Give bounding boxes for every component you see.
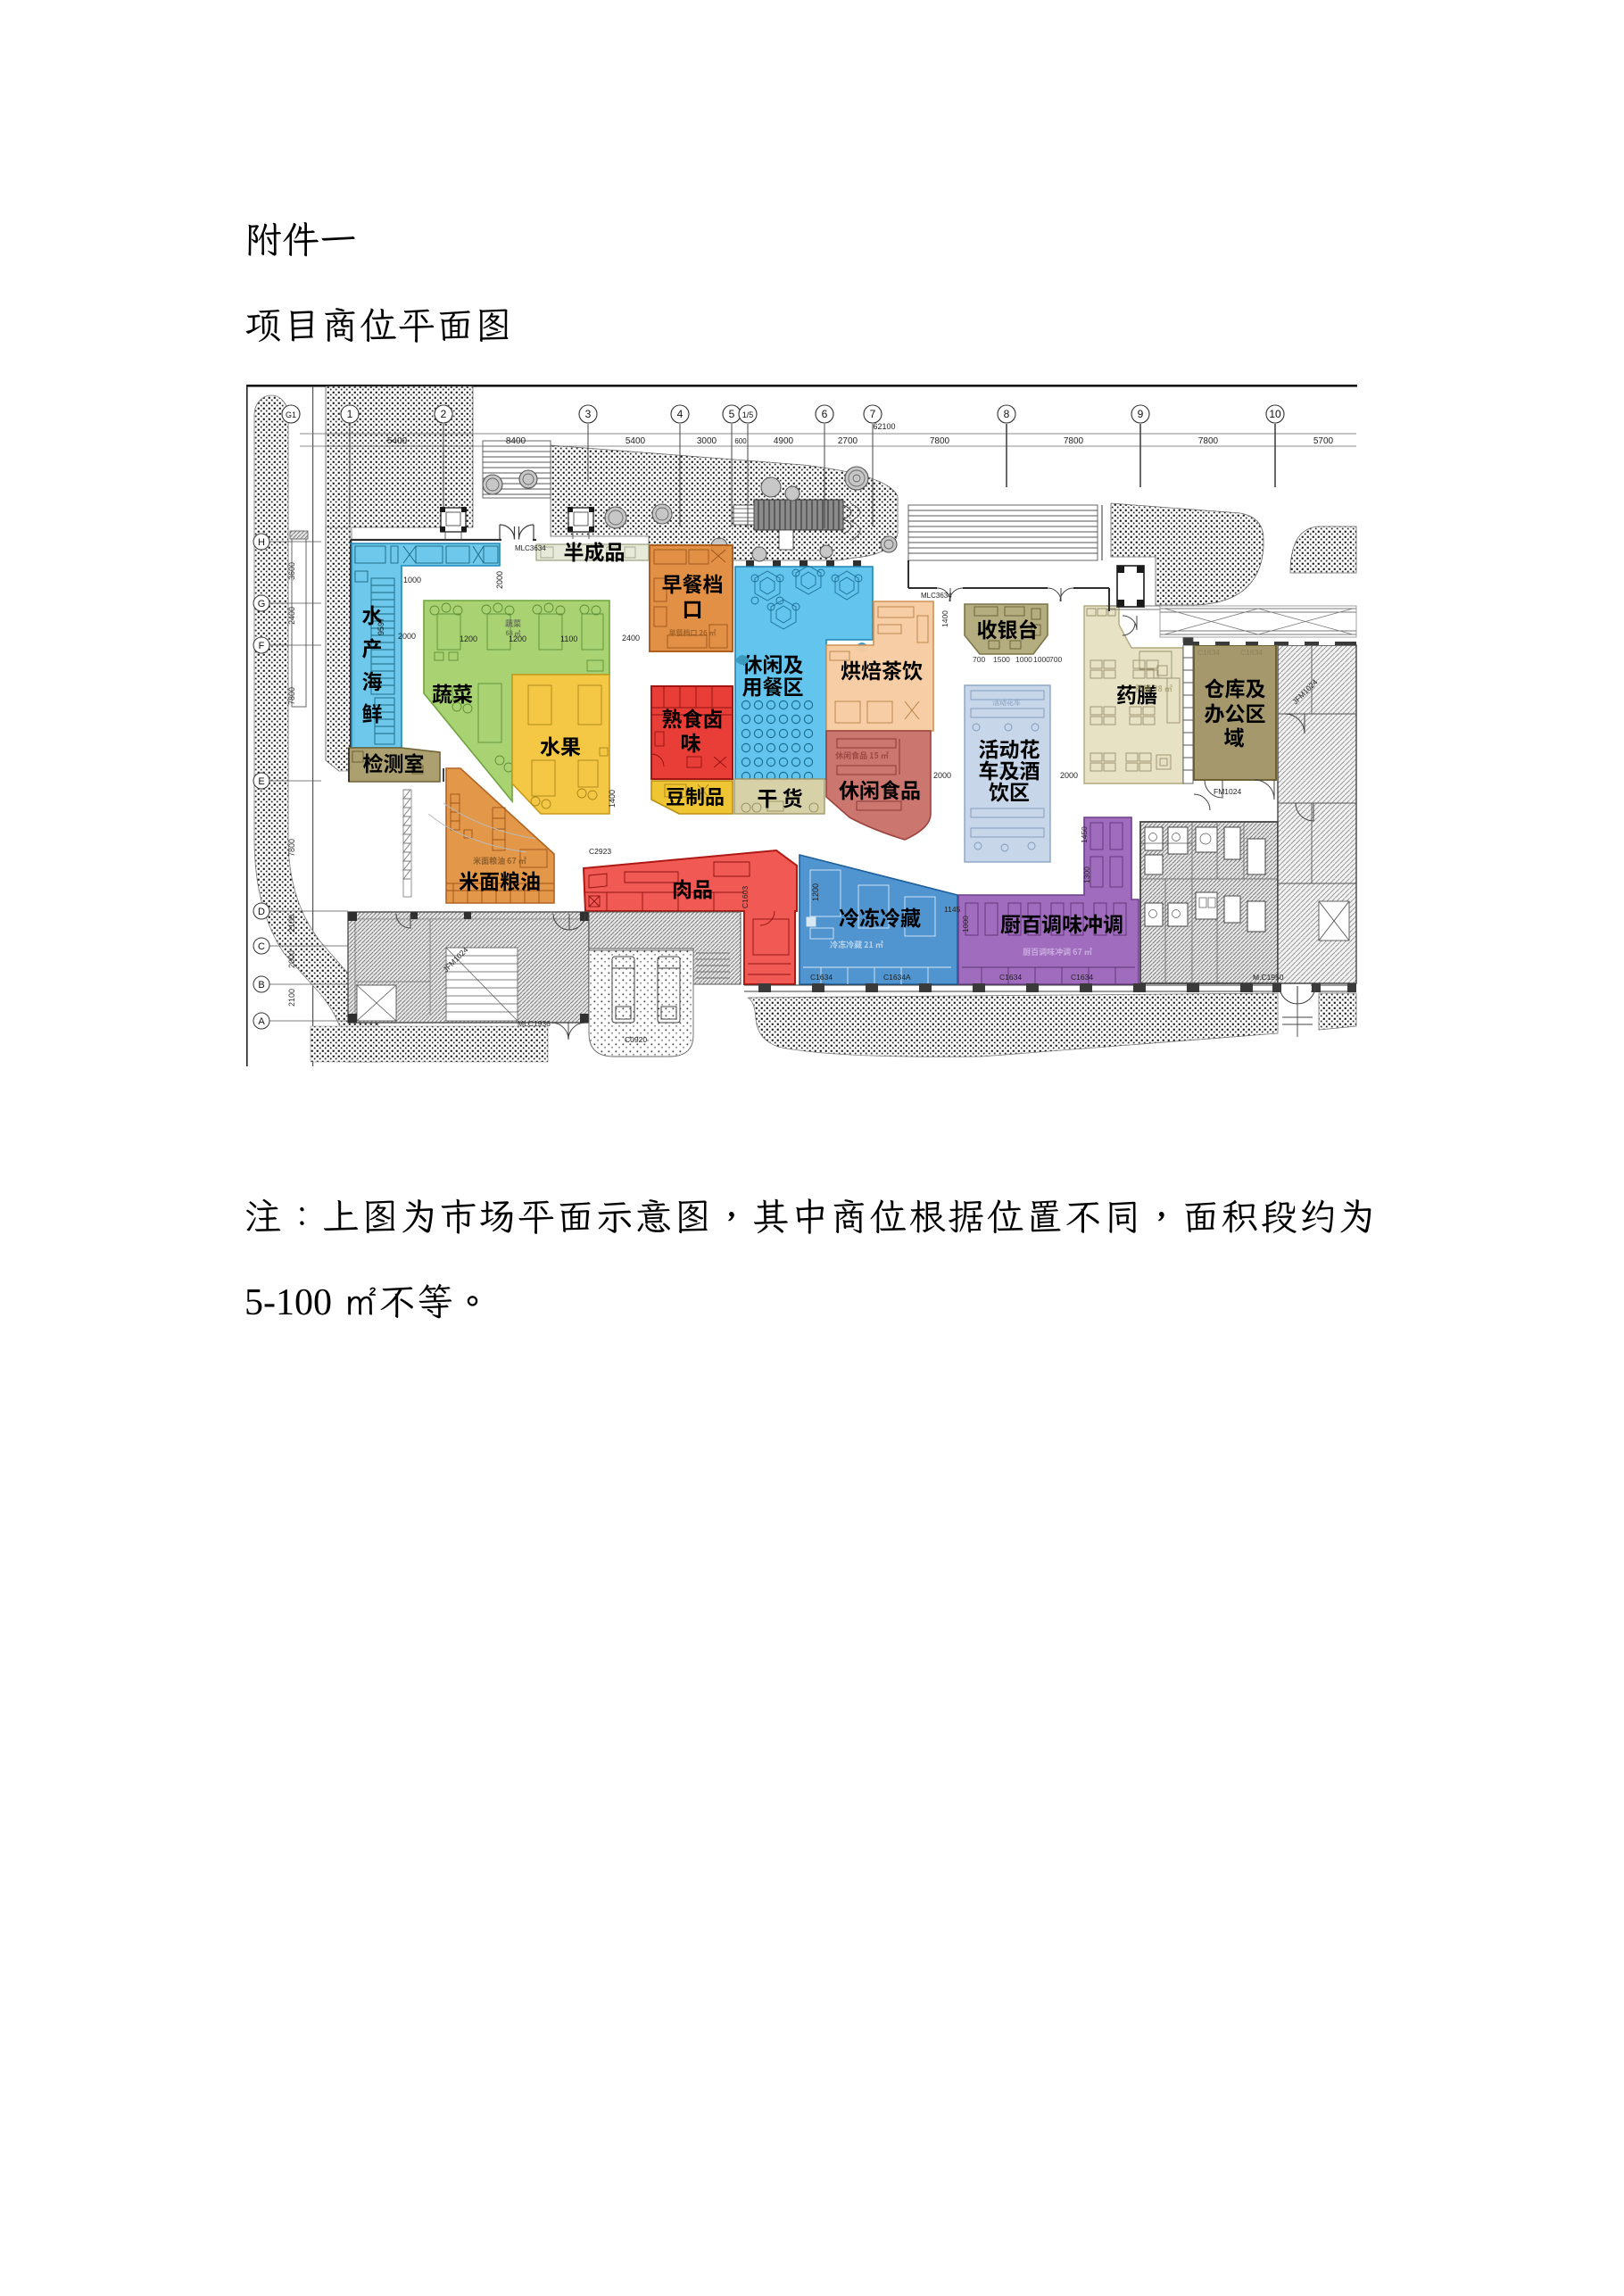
svg-text:C1634: C1634 (999, 973, 1022, 982)
svg-text:烘焙茶饮: 烘焙茶饮 (841, 654, 923, 684)
svg-text:早餐档口 26 ㎡: 早餐档口 26 ㎡ (668, 628, 716, 638)
svg-text:冷冻冷藏 21 ㎡: 冷冻冷藏 21 ㎡ (830, 939, 883, 950)
svg-text:H: H (258, 537, 265, 548)
svg-text:5700: 5700 (1313, 436, 1334, 446)
svg-text:1100: 1100 (560, 634, 577, 643)
svg-text:1000: 1000 (403, 576, 421, 584)
svg-text:G: G (258, 599, 266, 609)
svg-text:5: 5 (729, 408, 735, 420)
svg-text:1: 1 (347, 408, 353, 420)
svg-text:C2923: C2923 (589, 847, 611, 856)
svg-text:1400: 1400 (940, 610, 949, 627)
svg-text:1400: 1400 (608, 790, 617, 808)
svg-text:1000: 1000 (1033, 655, 1050, 664)
svg-text:用餐区: 用餐区 (742, 670, 804, 700)
svg-text:2000: 2000 (495, 571, 504, 589)
svg-text:水果: 水果 (540, 730, 581, 760)
svg-text:700: 700 (1049, 655, 1062, 664)
svg-text:7800: 7800 (1198, 436, 1219, 446)
svg-text:7800: 7800 (930, 436, 950, 446)
svg-text:肉品: 肉品 (672, 873, 713, 903)
svg-text:MLC3634: MLC3634 (515, 544, 546, 552)
svg-text:1450: 1450 (1080, 826, 1089, 843)
svg-text:4: 4 (677, 408, 684, 420)
svg-text:2000: 2000 (1060, 771, 1078, 780)
svg-text:E: E (258, 776, 264, 787)
svg-text:活动花车: 活动花车 (992, 698, 1021, 708)
svg-text:C: C (258, 941, 265, 952)
svg-text:10: 10 (1269, 408, 1281, 420)
svg-text:1/5: 1/5 (742, 410, 754, 419)
svg-text:2100: 2100 (287, 989, 296, 1007)
svg-text:5400: 5400 (387, 436, 408, 446)
svg-text:9597: 9597 (377, 618, 385, 635)
svg-text:海: 海 (362, 665, 383, 695)
svg-text:8400: 8400 (506, 436, 526, 446)
svg-text:药膳 38 ㎡: 药膳 38 ㎡ (1135, 683, 1172, 694)
svg-text:MLC3634: MLC3634 (921, 592, 952, 600)
svg-text:鲜: 鲜 (362, 697, 383, 727)
svg-text:休闲食品 15 ㎡: 休闲食品 15 ㎡ (835, 750, 889, 761)
svg-text:62100: 62100 (873, 422, 895, 431)
svg-text:C1634: C1634 (1197, 648, 1220, 657)
svg-text:F: F (259, 641, 265, 651)
svg-text:3: 3 (585, 408, 592, 420)
svg-text:9: 9 (1138, 408, 1144, 420)
svg-text:厨百调味冲调 67 ㎡: 厨百调味冲调 67 ㎡ (1023, 946, 1092, 957)
svg-text:7: 7 (870, 408, 876, 420)
svg-text:2400: 2400 (622, 634, 640, 642)
svg-text:C1634: C1634 (810, 973, 833, 982)
svg-text:5400: 5400 (626, 436, 646, 446)
svg-text:FM1024: FM1024 (1214, 787, 1241, 796)
svg-text:味: 味 (681, 726, 701, 757)
svg-text:7800: 7800 (287, 687, 296, 705)
svg-text:B: B (258, 980, 264, 991)
svg-text:域: 域 (1224, 721, 1245, 751)
svg-text:M.C1950: M.C1950 (1253, 973, 1284, 982)
svg-text:米面粮油 67 ㎡: 米面粮油 67 ㎡ (473, 855, 526, 866)
svg-text:1145: 1145 (944, 905, 961, 914)
svg-text:1200: 1200 (811, 883, 820, 901)
svg-text:饮区: 饮区 (989, 775, 1030, 806)
svg-text:4900: 4900 (774, 436, 794, 446)
svg-text:1000: 1000 (1015, 655, 1032, 664)
svg-text:3600: 3600 (287, 562, 296, 580)
svg-text:D: D (258, 907, 265, 917)
svg-text:600: 600 (734, 437, 747, 445)
svg-text:A: A (258, 1016, 265, 1027)
svg-text:蔬菜: 蔬菜 (505, 618, 521, 629)
svg-text:6: 6 (822, 408, 828, 420)
svg-text:C0920: C0920 (625, 1035, 647, 1044)
svg-text:1200: 1200 (460, 634, 477, 643)
svg-text:G1: G1 (286, 410, 296, 419)
svg-text:蔬菜: 蔬菜 (432, 677, 473, 708)
svg-text:2400: 2400 (287, 607, 296, 625)
svg-text:休闲食品: 休闲食品 (839, 774, 921, 804)
svg-text:C1634A: C1634A (883, 973, 911, 982)
svg-text:2100: 2100 (287, 915, 296, 932)
svg-text:2000: 2000 (933, 771, 951, 780)
svg-text:700: 700 (973, 655, 985, 664)
svg-text:C1634: C1634 (1240, 648, 1263, 657)
svg-text:检测室: 检测室 (363, 747, 425, 777)
svg-text:68 ㎡: 68 ㎡ (506, 629, 521, 638)
svg-text:产: 产 (362, 632, 383, 662)
svg-text:MLC1936: MLC1936 (518, 1019, 551, 1028)
svg-text:2: 2 (441, 408, 447, 420)
svg-text:1300: 1300 (1082, 866, 1091, 883)
svg-text:口: 口 (683, 593, 703, 623)
svg-text:冷冻冷藏: 冷冻冷藏 (839, 901, 921, 932)
svg-text:厨百调味冲调: 厨百调味冲调 (1000, 908, 1123, 938)
svg-text:8: 8 (1004, 408, 1010, 420)
svg-text:干 货: 干 货 (757, 782, 802, 812)
svg-text:米面粮油: 米面粮油 (459, 865, 541, 895)
svg-text:2000: 2000 (398, 632, 416, 641)
svg-text:半成品: 半成品 (564, 535, 626, 566)
svg-text:收银台: 收银台 (977, 613, 1039, 643)
svg-text:3000: 3000 (697, 436, 717, 446)
svg-text:7800: 7800 (287, 839, 296, 857)
svg-text:2700: 2700 (838, 436, 858, 446)
svg-text:1000: 1000 (961, 916, 970, 932)
svg-text:7800: 7800 (1064, 436, 1084, 446)
svg-text:1500: 1500 (993, 655, 1010, 664)
svg-text:C1634: C1634 (1071, 973, 1093, 982)
svg-text:C1603: C1603 (741, 886, 750, 908)
svg-text:豆制品: 豆制品 (666, 782, 725, 810)
svg-text:2000: 2000 (287, 950, 296, 968)
